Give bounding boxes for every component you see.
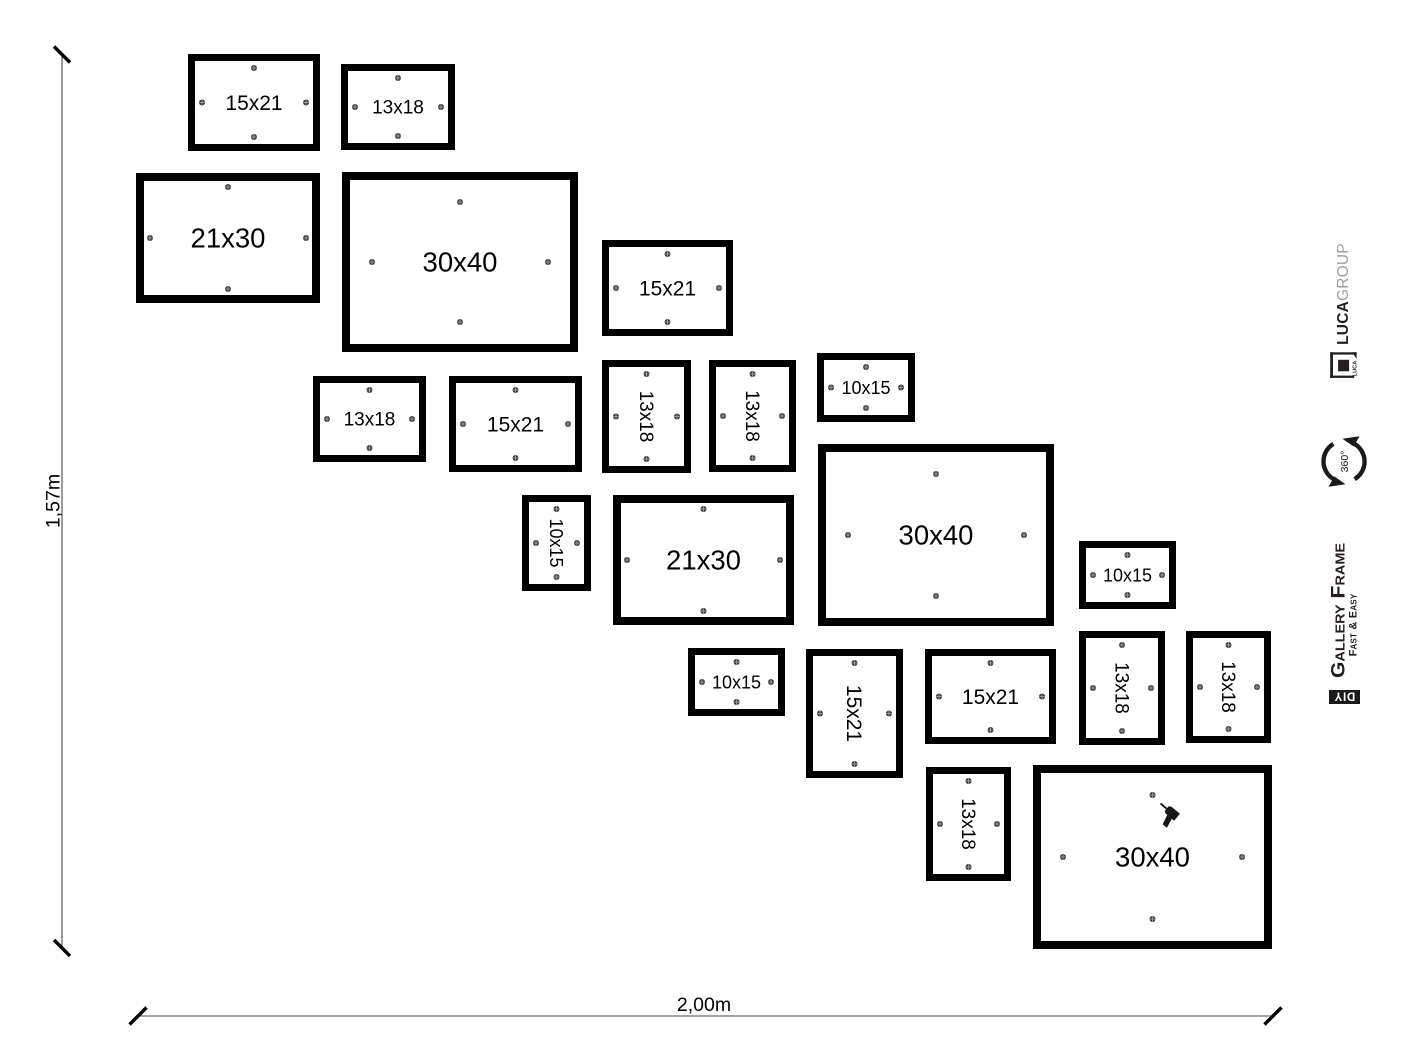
svg-text:15x21: 15x21 bbox=[639, 277, 696, 300]
svg-text:Fast & Easy: Fast & Easy bbox=[1348, 593, 1360, 656]
svg-text:10x15: 10x15 bbox=[546, 518, 566, 567]
svg-text:15x21: 15x21 bbox=[842, 685, 865, 742]
svg-text:13x18: 13x18 bbox=[635, 391, 656, 443]
svg-text:30x40: 30x40 bbox=[1115, 842, 1190, 873]
svg-text:13x18: 13x18 bbox=[344, 410, 396, 431]
svg-text:15x21: 15x21 bbox=[962, 686, 1019, 709]
svg-text:360°: 360° bbox=[1339, 451, 1351, 473]
svg-text:13x18: 13x18 bbox=[957, 798, 978, 850]
svg-text:21x30: 21x30 bbox=[191, 223, 266, 254]
svg-text:LUCA: LUCA bbox=[1352, 361, 1358, 377]
svg-text:30x40: 30x40 bbox=[423, 247, 498, 278]
svg-text:10x15: 10x15 bbox=[841, 378, 890, 398]
svg-text:Gallery Frame: Gallery Frame bbox=[1329, 543, 1350, 678]
svg-text:LUCAGROUP: LUCAGROUP bbox=[1335, 243, 1352, 345]
svg-text:15x21: 15x21 bbox=[225, 92, 282, 115]
svg-text:13x18: 13x18 bbox=[741, 390, 762, 442]
svg-text:10x15: 10x15 bbox=[712, 672, 761, 692]
svg-text:13x18: 13x18 bbox=[1110, 662, 1131, 714]
svg-text:13x18: 13x18 bbox=[372, 98, 424, 119]
svg-text:2,00m: 2,00m bbox=[677, 994, 731, 1016]
svg-text:1,57m: 1,57m bbox=[43, 474, 65, 528]
svg-text:13x18: 13x18 bbox=[1217, 661, 1238, 713]
svg-text:DIY: DIY bbox=[1334, 690, 1356, 702]
svg-text:10x15: 10x15 bbox=[1103, 565, 1152, 585]
svg-text:21x30: 21x30 bbox=[666, 545, 741, 576]
svg-text:15x21: 15x21 bbox=[487, 413, 544, 436]
svg-text:30x40: 30x40 bbox=[899, 520, 974, 551]
